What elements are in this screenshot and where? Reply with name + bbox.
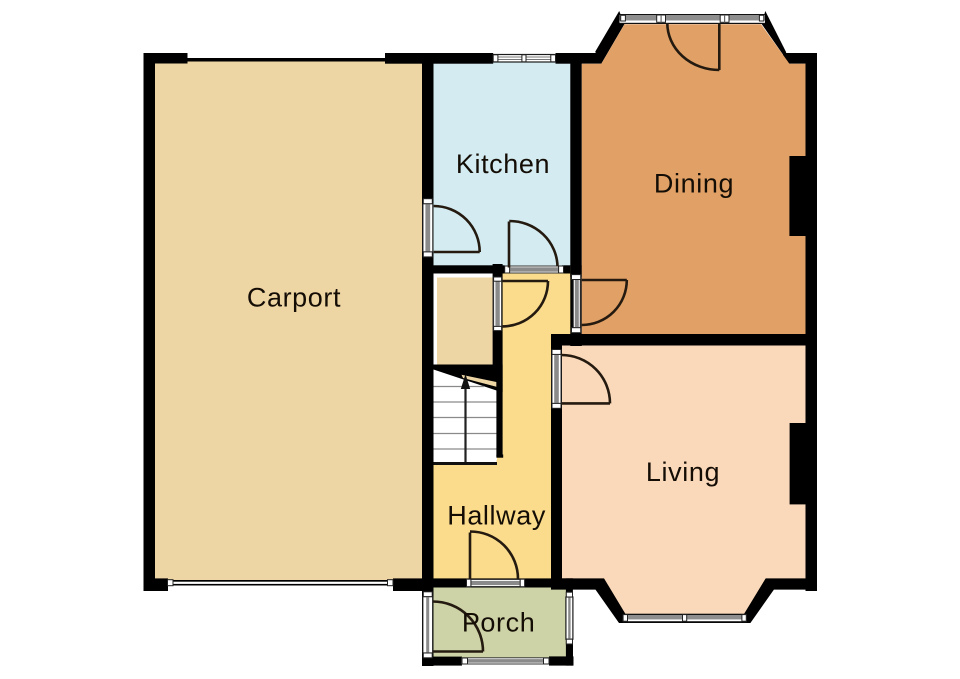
svg-text:Hallway: Hallway xyxy=(447,501,546,531)
svg-text:Porch: Porch xyxy=(462,608,536,638)
svg-text:Kitchen: Kitchen xyxy=(456,149,550,179)
svg-text:Dining: Dining xyxy=(654,169,734,199)
svg-text:Carport: Carport xyxy=(247,282,341,312)
svg-text:Living: Living xyxy=(646,457,720,487)
